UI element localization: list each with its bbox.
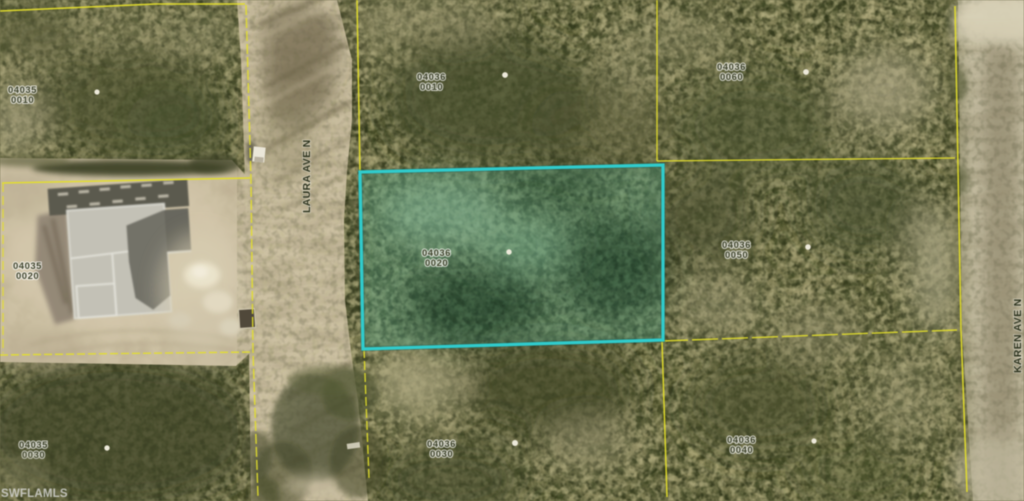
svg-text:SWFLAMLS: SWFLAMLS (1, 488, 68, 500)
